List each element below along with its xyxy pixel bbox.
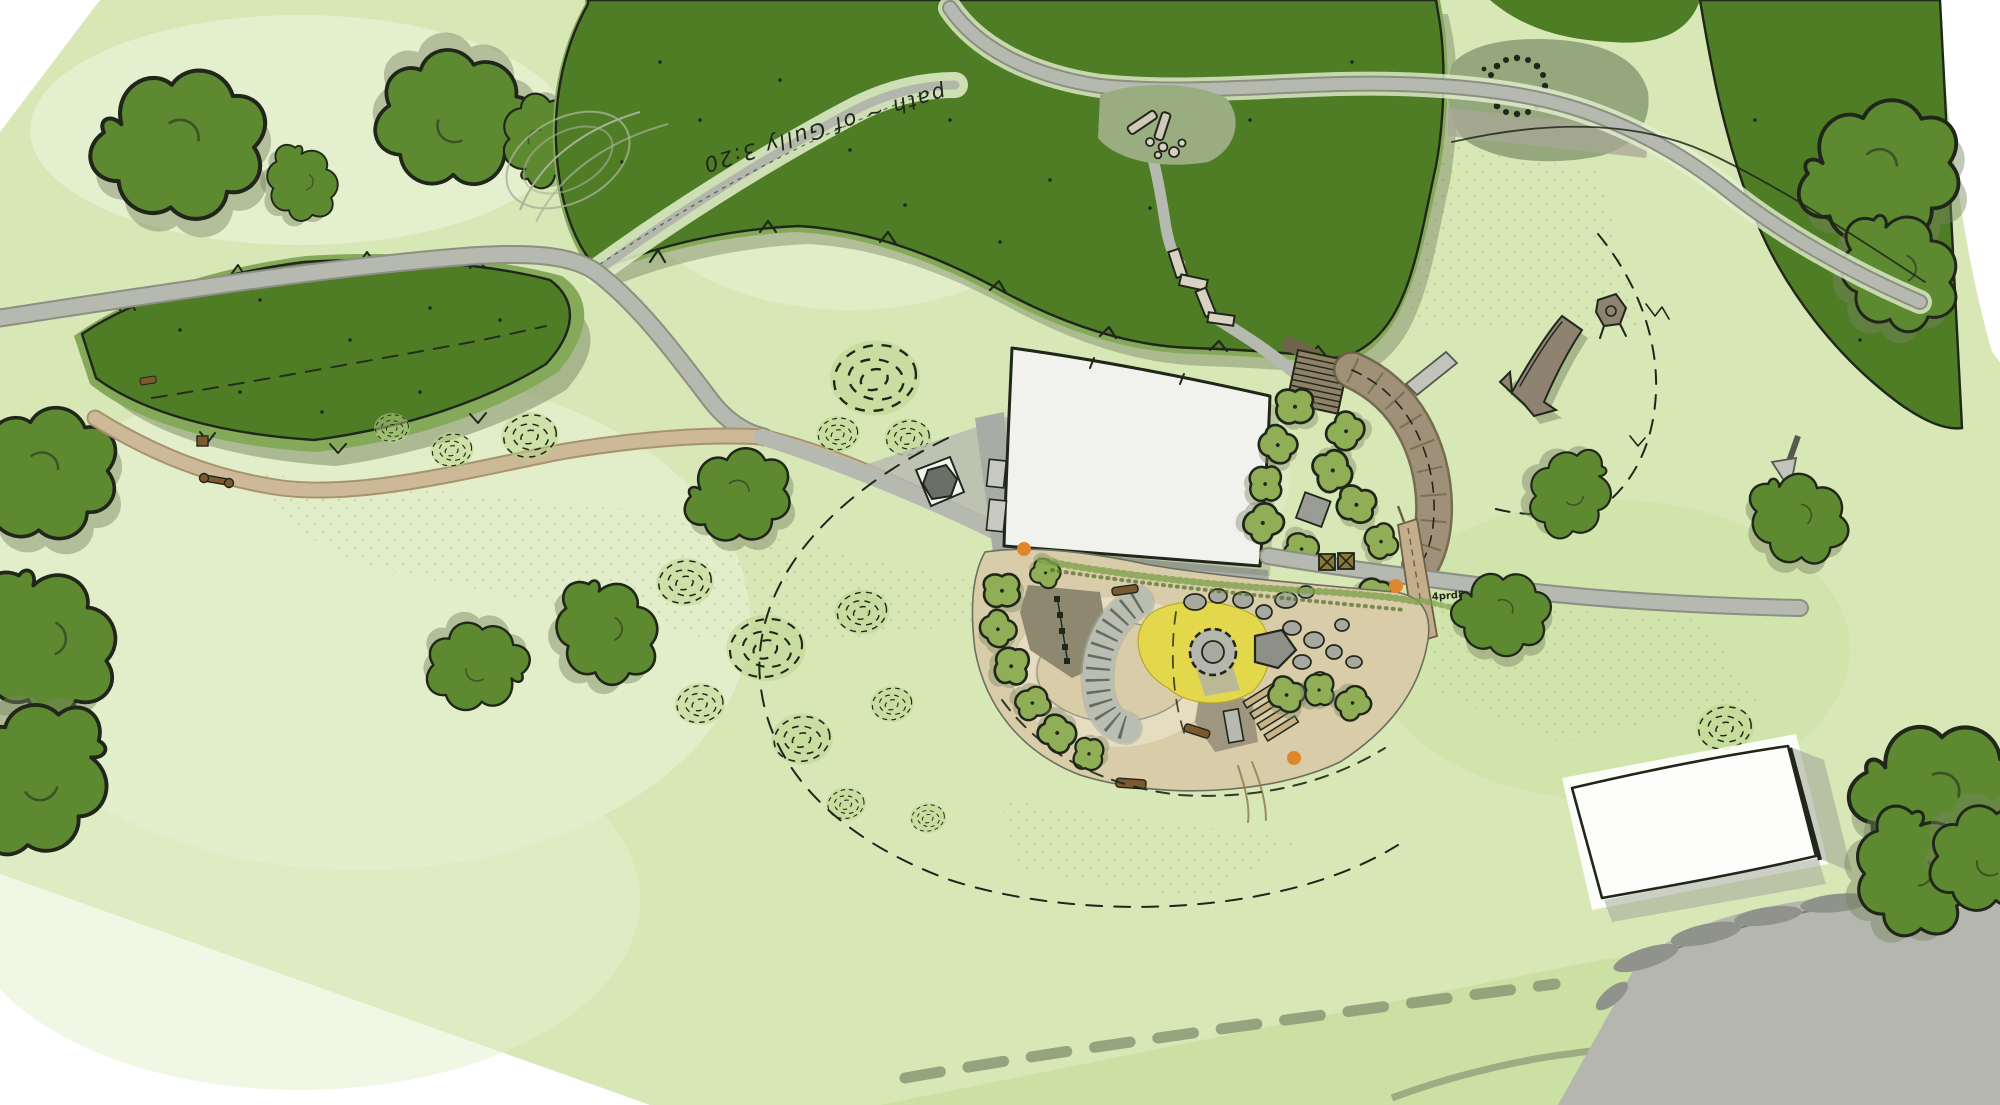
orange-marker	[1287, 751, 1301, 765]
orange-marker	[1389, 579, 1403, 593]
picnic-table	[1338, 553, 1354, 569]
picnic-table	[1319, 554, 1335, 570]
building-step	[987, 459, 1007, 488]
orange-marker	[1017, 542, 1031, 556]
masterplan-drawing: path ~ of Gully 3:20	[0, 0, 2000, 1105]
log-clearing	[1098, 85, 1236, 165]
gate-marker	[197, 436, 208, 446]
building-step	[986, 499, 1006, 532]
masterplan-sheet: path ~ of Gully 3:20	[0, 0, 2000, 1105]
